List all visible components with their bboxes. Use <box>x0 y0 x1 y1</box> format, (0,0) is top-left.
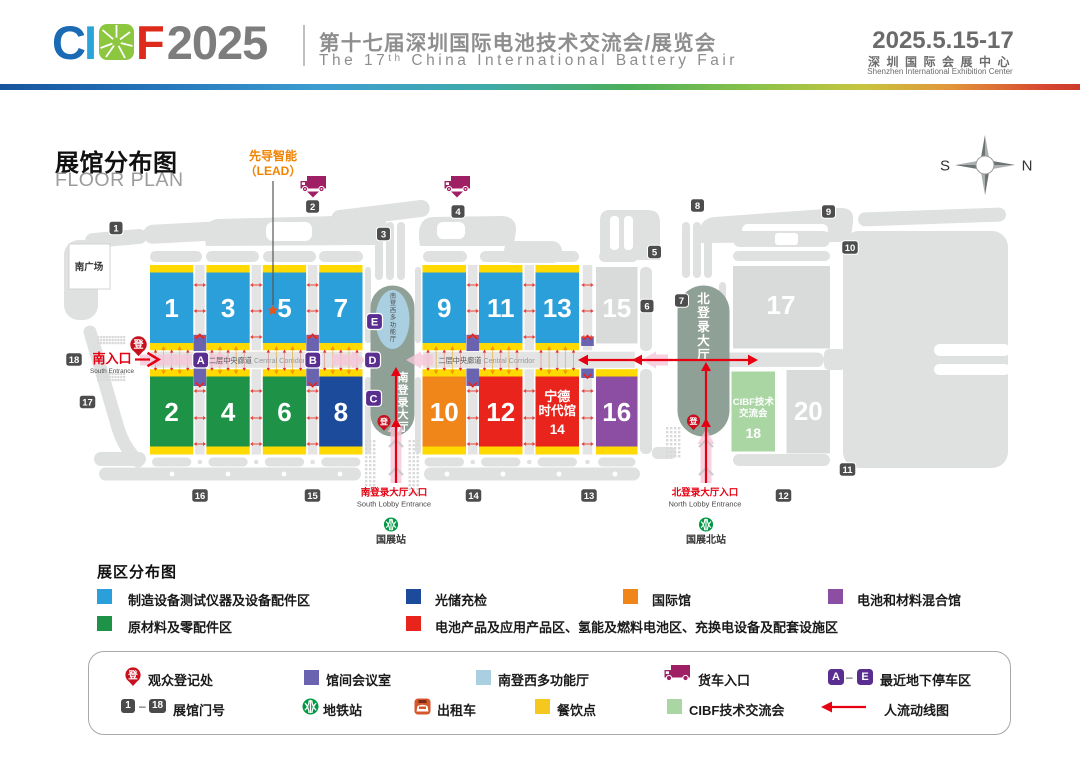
svg-text:8: 8 <box>695 201 700 212</box>
svg-text:B: B <box>309 355 317 367</box>
svg-text:D: D <box>369 355 377 367</box>
svg-text:6: 6 <box>644 301 649 312</box>
svg-text:3: 3 <box>381 229 386 240</box>
svg-text:12: 12 <box>778 491 789 502</box>
svg-text:South Entrance: South Entrance <box>90 368 135 375</box>
svg-text:9: 9 <box>437 293 451 323</box>
svg-text:南登录大厅入口: 南登录大厅入口 <box>361 487 428 499</box>
svg-text:5: 5 <box>277 293 291 323</box>
svg-text:多: 多 <box>390 314 396 322</box>
svg-text:North Lobby Entrance: North Lobby Entrance <box>669 500 742 509</box>
svg-text:CIBF技术: CIBF技术 <box>733 396 775 408</box>
svg-text:1: 1 <box>113 223 119 234</box>
svg-text:登: 登 <box>397 382 410 396</box>
svg-text:N: N <box>1022 158 1033 175</box>
svg-text:16: 16 <box>602 397 631 427</box>
svg-text:（LEAD）: （LEAD） <box>245 163 302 178</box>
svg-text:15: 15 <box>602 293 631 323</box>
svg-text:20: 20 <box>794 396 823 426</box>
svg-text:登: 登 <box>390 299 397 307</box>
svg-text:大: 大 <box>398 407 409 421</box>
svg-text:南: 南 <box>390 292 396 300</box>
svg-text:E: E <box>371 317 378 329</box>
svg-text:二层中央廊道 Central Corridor: 二层中央廊道 Central Corridor <box>209 356 306 365</box>
svg-text:14: 14 <box>468 491 479 502</box>
svg-text:1: 1 <box>164 293 178 323</box>
svg-text:登: 登 <box>127 669 138 681</box>
svg-text:二层中央廊道 Central Corridor: 二层中央廊道 Central Corridor <box>438 356 535 365</box>
svg-text:南: 南 <box>398 370 409 384</box>
svg-text:9: 9 <box>826 207 831 218</box>
svg-text:2: 2 <box>310 202 315 213</box>
svg-text:南入口: 南入口 <box>92 351 131 366</box>
svg-text:登: 登 <box>696 305 710 320</box>
svg-text:17: 17 <box>767 290 796 320</box>
svg-text:14: 14 <box>550 422 566 437</box>
svg-text:12: 12 <box>486 397 515 427</box>
svg-text:4: 4 <box>455 207 461 218</box>
svg-text:能: 能 <box>390 328 396 336</box>
svg-text:13: 13 <box>584 491 595 502</box>
svg-text:18: 18 <box>69 355 80 366</box>
svg-text:国展北站: 国展北站 <box>686 533 726 546</box>
svg-text:15: 15 <box>307 491 318 502</box>
svg-text:17: 17 <box>82 397 93 408</box>
svg-text:13: 13 <box>543 293 572 323</box>
svg-text:11: 11 <box>842 465 853 476</box>
svg-text:South Lobby Entrance: South Lobby Entrance <box>357 500 431 509</box>
svg-text:C: C <box>370 393 378 405</box>
svg-text:7: 7 <box>679 296 684 307</box>
svg-text:10: 10 <box>430 397 459 427</box>
svg-text:南广场: 南广场 <box>75 261 104 273</box>
svg-text:16: 16 <box>195 491 206 502</box>
svg-text:6: 6 <box>277 397 291 427</box>
svg-text:18: 18 <box>746 425 762 441</box>
svg-text:功: 功 <box>390 321 396 329</box>
svg-text:国展站: 国展站 <box>376 533 406 546</box>
svg-text:录: 录 <box>697 320 710 334</box>
svg-text:录: 录 <box>398 396 409 409</box>
svg-text:交流会: 交流会 <box>739 408 768 420</box>
svg-text:7: 7 <box>334 293 348 323</box>
svg-text:10: 10 <box>845 243 856 254</box>
svg-text:11: 11 <box>487 293 515 323</box>
svg-text:西: 西 <box>390 307 396 314</box>
svg-text:北登录大厅入口: 北登录大厅入口 <box>672 487 739 499</box>
svg-text:先导智能: 先导智能 <box>249 148 297 163</box>
svg-text:4: 4 <box>221 397 236 427</box>
svg-text:北: 北 <box>697 291 710 306</box>
svg-text:3: 3 <box>221 293 235 323</box>
svg-text:A: A <box>197 355 205 367</box>
svg-text:厅: 厅 <box>390 336 396 343</box>
svg-text:2: 2 <box>164 397 178 427</box>
svg-text:5: 5 <box>652 247 658 258</box>
svg-text:宁德: 宁德 <box>544 389 570 404</box>
svg-text:8: 8 <box>334 397 348 427</box>
svg-text:大: 大 <box>697 333 710 348</box>
svg-text:厅: 厅 <box>398 421 409 434</box>
svg-text:时代馆: 时代馆 <box>539 403 577 418</box>
svg-text:S: S <box>940 158 950 175</box>
